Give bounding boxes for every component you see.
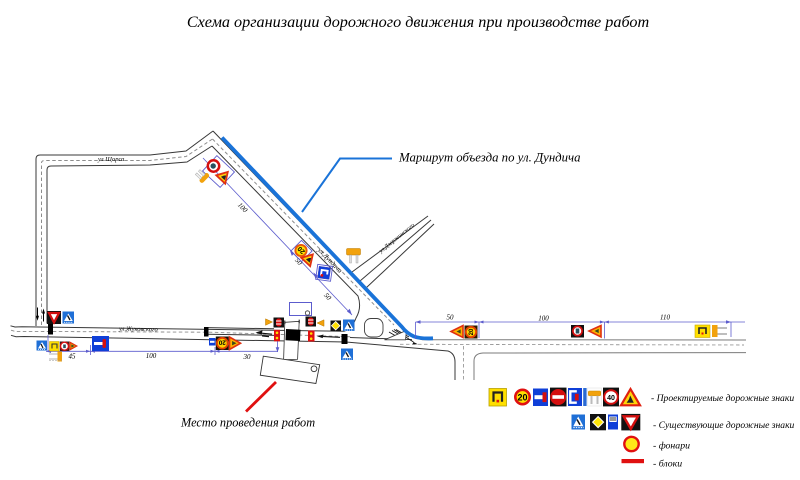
svg-text:- Проектируемые дорожные знаки: - Проектируемые дорожные знаки xyxy=(651,393,794,404)
svg-text:30: 30 xyxy=(243,353,252,361)
svg-text:- Существующие дорожные знаки: - Существующие дорожные знаки xyxy=(653,420,795,431)
svg-text:ул.Дзержинского: ул.Дзержинского xyxy=(378,223,416,256)
svg-text:Маршрут объезда по ул. Дундича: Маршрут объезда по ул. Дундича xyxy=(398,151,581,165)
svg-text:Схема организации дорожного дв: Схема организации дорожного движения при… xyxy=(187,13,650,31)
svg-text:100: 100 xyxy=(236,201,249,214)
svg-text:100: 100 xyxy=(146,352,157,360)
svg-text:ул.Щорса: ул.Щорса xyxy=(97,156,124,163)
svg-text:100: 100 xyxy=(538,315,549,323)
svg-text:50: 50 xyxy=(447,314,455,322)
svg-text:20: 20 xyxy=(517,392,527,402)
svg-text:40: 40 xyxy=(607,395,615,402)
svg-text:Место проведения работ: Место проведения работ xyxy=(180,416,315,430)
svg-text:ул.Жуковского: ул.Жуковского xyxy=(118,326,158,334)
svg-text:110: 110 xyxy=(660,314,670,322)
svg-text:20: 20 xyxy=(218,339,226,346)
svg-text:20: 20 xyxy=(469,328,475,335)
svg-text:- фонари: - фонари xyxy=(653,441,690,452)
svg-text:- блоки: - блоки xyxy=(653,459,682,470)
svg-text:45: 45 xyxy=(69,353,77,361)
